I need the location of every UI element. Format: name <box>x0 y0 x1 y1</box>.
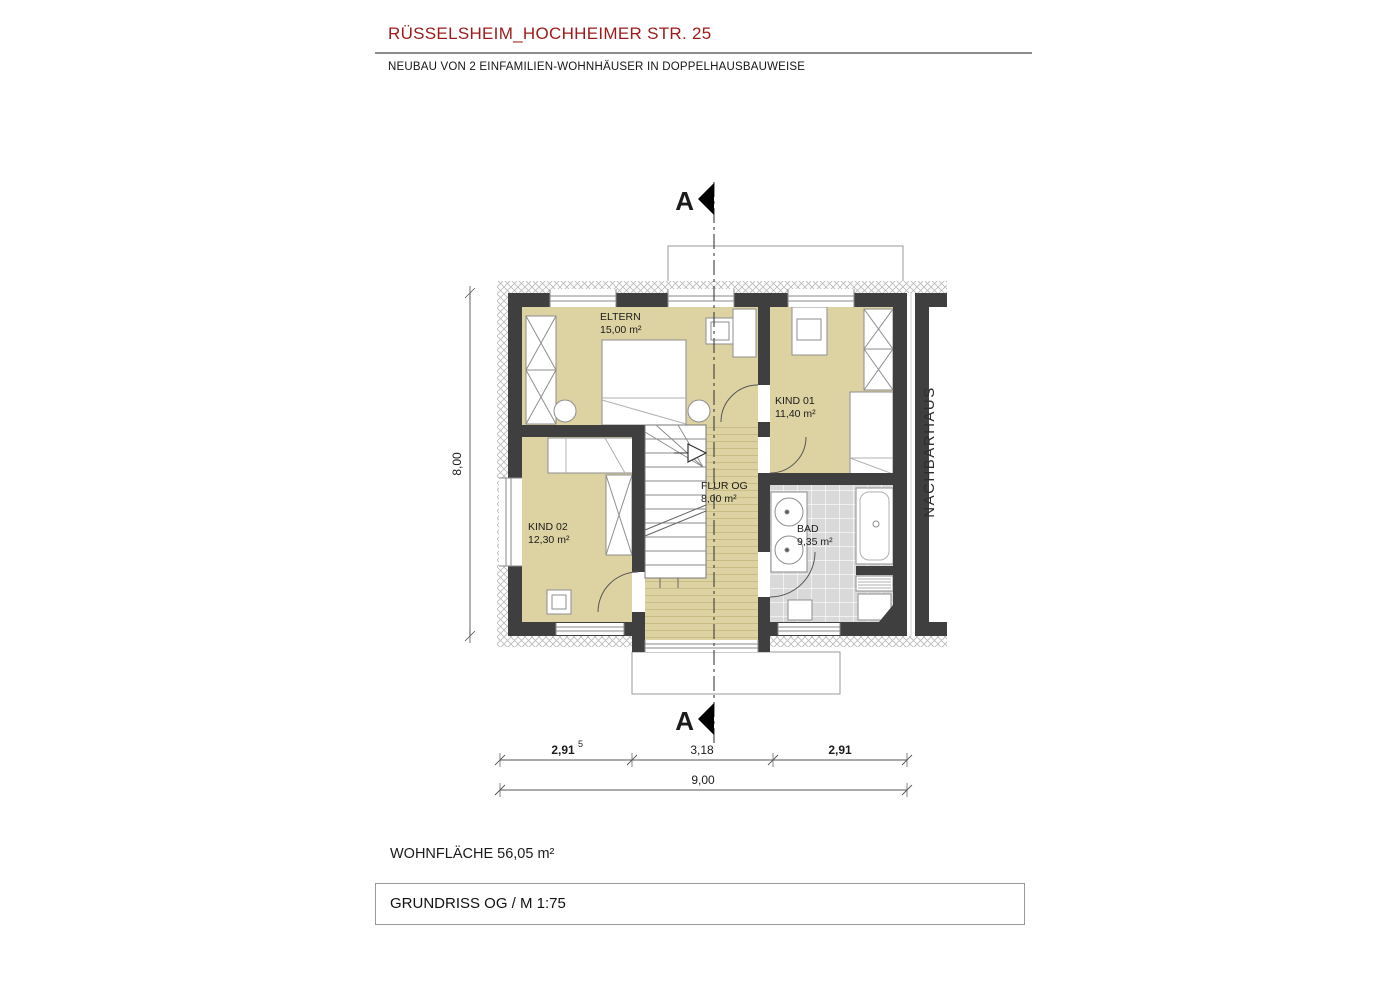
eltern-label: ELTERN <box>600 311 641 323</box>
kind02-nightstand <box>547 590 571 614</box>
section-label-top: A <box>675 186 694 216</box>
dim-2-91-left-sup: 5 <box>578 739 583 749</box>
dim-9-00: 9,00 <box>691 773 715 787</box>
flur-area: 8,00 m² <box>701 493 737 505</box>
kind02-label: KIND 02 <box>528 521 568 533</box>
dormer-outline-bottom <box>632 652 840 694</box>
floor-plan-drawing: ELTERN 15,00 m² KIND 01 11,40 m² KIND 02… <box>0 0 1400 989</box>
eltern-bed <box>602 340 686 425</box>
drawing-title-text: GRUNDRISS OG / M 1:75 <box>376 884 1024 924</box>
bad-radiator <box>856 576 893 591</box>
living-area-text: WOHNFLÄCHE 56,05 m² <box>390 846 554 862</box>
drawing-title-box: GRUNDRISS OG / M 1:75 <box>375 883 1025 925</box>
dim-2-91-right: 2,91 <box>828 743 852 757</box>
dim-2-91-left: 2,91 <box>551 743 575 757</box>
kind02-area: 12,30 m² <box>528 534 570 546</box>
section-arrow-bottom <box>698 703 714 735</box>
dim-8-00: 8,00 <box>450 452 464 476</box>
kind02-wardrobe <box>606 475 632 555</box>
section-label-bottom: A <box>675 706 694 736</box>
bad-bathtub <box>856 488 893 564</box>
bad-bidet <box>788 600 812 620</box>
eltern-nightstand-right <box>688 400 710 422</box>
eltern-nightstand-left <box>554 400 576 422</box>
section-arrow-top <box>698 183 714 215</box>
neighbor-house-label: NACHBARHAUS <box>921 386 938 518</box>
kind01-wardrobe <box>864 309 893 390</box>
plan-sheet: RÜSSELSHEIM_HOCHHEIMER STR. 25 NEUBAU VO… <box>0 0 1400 989</box>
staircase <box>645 425 706 588</box>
bad-area: 9,35 m² <box>797 536 833 548</box>
eltern-wardrobe <box>526 316 556 424</box>
kind01-bed <box>850 392 893 475</box>
kind01-area: 11,40 m² <box>775 408 816 420</box>
bad-label: BAD <box>797 523 819 535</box>
eltern-area: 15,00 m² <box>600 324 642 336</box>
dim-3-18: 3,18 <box>690 743 714 757</box>
kind02-bed <box>548 438 634 473</box>
flur-label: FLUR OG <box>701 480 748 492</box>
kind01-label: KIND 01 <box>775 395 815 407</box>
kind01-desk <box>792 307 827 355</box>
